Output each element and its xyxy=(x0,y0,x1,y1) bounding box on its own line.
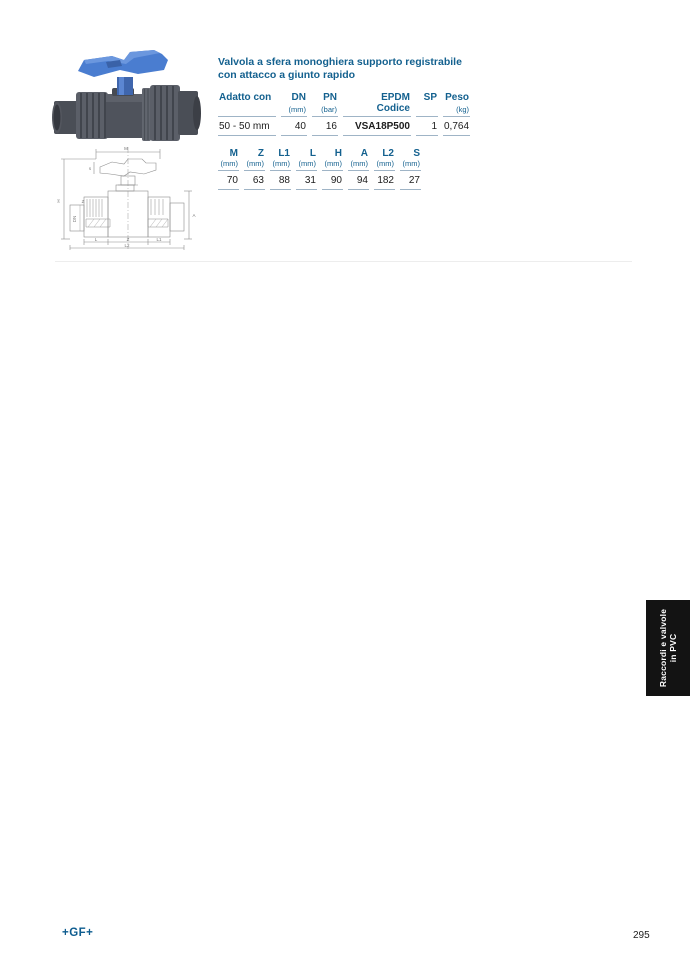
col-unit-pn: (bar) xyxy=(312,103,338,117)
cell-m: 70 xyxy=(218,171,239,190)
dim-label-s: s xyxy=(89,166,92,171)
col-header-s: S xyxy=(400,148,421,159)
col-unit-l1: (mm) xyxy=(270,159,291,171)
dim-label-l: L xyxy=(95,237,98,242)
cell-z: 63 xyxy=(244,171,265,190)
cell-pn: 16 xyxy=(312,117,338,136)
col-header-l: L xyxy=(296,148,317,159)
dim-label-a: A xyxy=(192,213,195,218)
col-header-m: M xyxy=(218,148,239,159)
col-unit-h: (mm) xyxy=(322,159,343,171)
col-unit-l: (mm) xyxy=(296,159,317,171)
col-unit-codice: Codice xyxy=(343,103,411,117)
dim-label-m: M xyxy=(124,146,128,151)
dimension-drawing: M s H DN Z L Z L1 A L2 xyxy=(56,145,196,251)
col-unit-a: (mm) xyxy=(348,159,369,171)
ordering-table: Adatto con DN PN EPDM SP Peso (mm) (bar)… xyxy=(213,92,475,136)
page-number: 295 xyxy=(633,930,650,941)
cell-peso: 0,764 xyxy=(443,117,470,136)
col-header-l1: L1 xyxy=(270,148,291,159)
col-header-h: H xyxy=(322,148,343,159)
product-title-line1: Valvola a sfera monoghiera supporto regi… xyxy=(218,56,468,69)
cell-s: 27 xyxy=(400,171,421,190)
chapter-tab-line2: in PVC xyxy=(668,634,678,663)
table-row: 50 - 50 mm 40 16 VSA18P500 1 0,764 xyxy=(218,117,470,136)
gf-logo: +GF+ xyxy=(62,927,93,939)
chapter-tab-line1: Raccordi e valvole xyxy=(658,609,668,687)
dim-label-l1: L1 xyxy=(156,237,162,242)
ball-valve-image xyxy=(50,44,202,146)
col-unit-m: (mm) xyxy=(218,159,239,171)
col-header-epdm: EPDM xyxy=(343,92,411,103)
col-unit-peso: (kg) xyxy=(443,103,470,117)
cell-l2: 182 xyxy=(374,171,395,190)
col-header-adatto-con: Adatto con xyxy=(218,92,276,103)
col-header-peso: Peso xyxy=(443,92,470,103)
dimensions-table: M Z L1 L H A L2 S (mm) (mm) (mm) (mm) (m… xyxy=(213,148,426,190)
col-header-sp: SP xyxy=(416,92,438,103)
col-unit-dn: (mm) xyxy=(281,103,307,117)
section-divider xyxy=(55,261,632,262)
catalog-page: M s H DN Z L Z L1 A L2 Valvola a sfera m… xyxy=(0,0,690,971)
chapter-tab-raccordi-e-valvole[interactable]: Raccordi e valvole in PVC xyxy=(646,600,690,696)
cell-a: 94 xyxy=(348,171,369,190)
cell-l: 31 xyxy=(296,171,317,190)
dim-label-dn: DN xyxy=(72,216,77,223)
col-unit-z: (mm) xyxy=(244,159,265,171)
cell-codice: VSA18P500 xyxy=(343,117,411,136)
col-unit-adatto-con xyxy=(218,103,276,117)
col-header-dn: DN xyxy=(281,92,307,103)
dim-label-l2: L2 xyxy=(124,243,130,248)
col-unit-l2: (mm) xyxy=(374,159,395,171)
cell-sp: 1 xyxy=(416,117,438,136)
col-header-a: A xyxy=(348,148,369,159)
col-header-l2: L2 xyxy=(374,148,395,159)
cell-h: 90 xyxy=(322,171,343,190)
cell-l1: 88 xyxy=(270,171,291,190)
product-title: Valvola a sfera monoghiera supporto regi… xyxy=(218,56,468,82)
cell-adatto-con: 50 - 50 mm xyxy=(218,117,276,136)
chapter-tab-text: Raccordi e valvole in PVC xyxy=(646,600,690,696)
dim-label-h: H xyxy=(56,199,61,202)
product-title-line2: con attacco a giunto rapido xyxy=(218,69,468,82)
col-unit-sp xyxy=(416,103,438,117)
cell-dn: 40 xyxy=(281,117,307,136)
dim-label-z2: Z xyxy=(127,237,130,242)
col-header-z: Z xyxy=(244,148,265,159)
table-row: 70 63 88 31 90 94 182 27 xyxy=(218,171,421,190)
col-unit-s: (mm) xyxy=(400,159,421,171)
dim-label-z: Z xyxy=(82,199,85,204)
col-header-pn: PN xyxy=(312,92,338,103)
product-photo xyxy=(50,44,202,146)
